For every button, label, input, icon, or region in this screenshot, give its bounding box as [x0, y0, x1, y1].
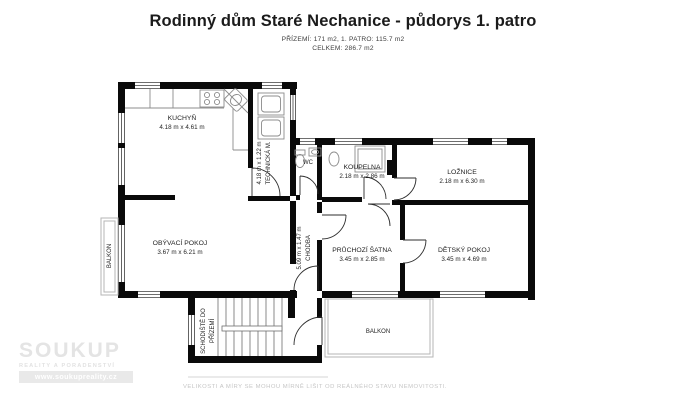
room-label-koupelna-dims: 2.18 m x 2.86 m	[339, 173, 384, 180]
room-label-chodba-name: CHODBA	[306, 235, 312, 261]
room-label-schodiste-line1: SCHODIŠTĚ DO	[199, 308, 207, 354]
stairs	[218, 298, 282, 356]
room-label-technicka-name: TECHNICKÁ M.	[265, 141, 272, 184]
room-label-balkon-left: BALKON	[107, 244, 113, 268]
balcony-bottom-outline	[325, 299, 433, 357]
room-label-detsky-name: DĚTSKÝ POKOJ	[438, 245, 490, 254]
bath-sink-icon	[329, 152, 339, 166]
room-label-kuchyn-dims: 4.18 m x 4.61 m	[159, 124, 204, 131]
kitchen-sink-icon	[224, 88, 248, 112]
disclaimer-text: VELIKOSTI A MÍRY SE MOHOU MÍRNĚ LIŠIT OD…	[0, 384, 630, 390]
room-label-obyvaci-dims: 3.67 m x 6.21 m	[157, 249, 202, 256]
agency-logo-text: SOUKUP	[19, 340, 133, 361]
room-label-loznice-name: LOŽNICE	[447, 167, 477, 176]
room-label-balkon-bottom: BALKON	[366, 329, 390, 335]
room-label-technicka-dims: 4.18 m x 1.22 m	[257, 141, 263, 184]
room-label-obyvaci-name: OBÝVACÍ POKOJ	[153, 238, 208, 247]
room-label-wc: WC	[303, 160, 314, 166]
room-label-koupelna-name: KOUPELNA	[343, 164, 380, 171]
room-label-kuchyn-name: KUCHYŇ	[168, 113, 197, 122]
room-label-loznice-dims: 2.18 m x 6.30 m	[439, 178, 484, 185]
stove-icon	[200, 90, 224, 107]
room-label-schodiste-line2: PŘÍZEMÍ	[208, 319, 216, 344]
agency-website: www.soukupreality.cz	[19, 371, 133, 383]
room-label-detsky-dims: 3.45 m x 4.69 m	[441, 256, 486, 263]
washer-icon	[258, 93, 284, 139]
room-label-chodba-dims: 5.09 m x 1.47 m	[297, 226, 303, 269]
agency-tagline: REALITY A PORADENSTVÍ	[19, 363, 133, 369]
room-label-satna-name: PRŮCHOZÍ ŠATNA	[332, 245, 392, 254]
agency-watermark: SOUKUP REALITY A PORADENSTVÍ www.soukupr…	[19, 340, 133, 383]
room-label-satna-dims: 3.45 m x 2.85 m	[339, 256, 384, 263]
